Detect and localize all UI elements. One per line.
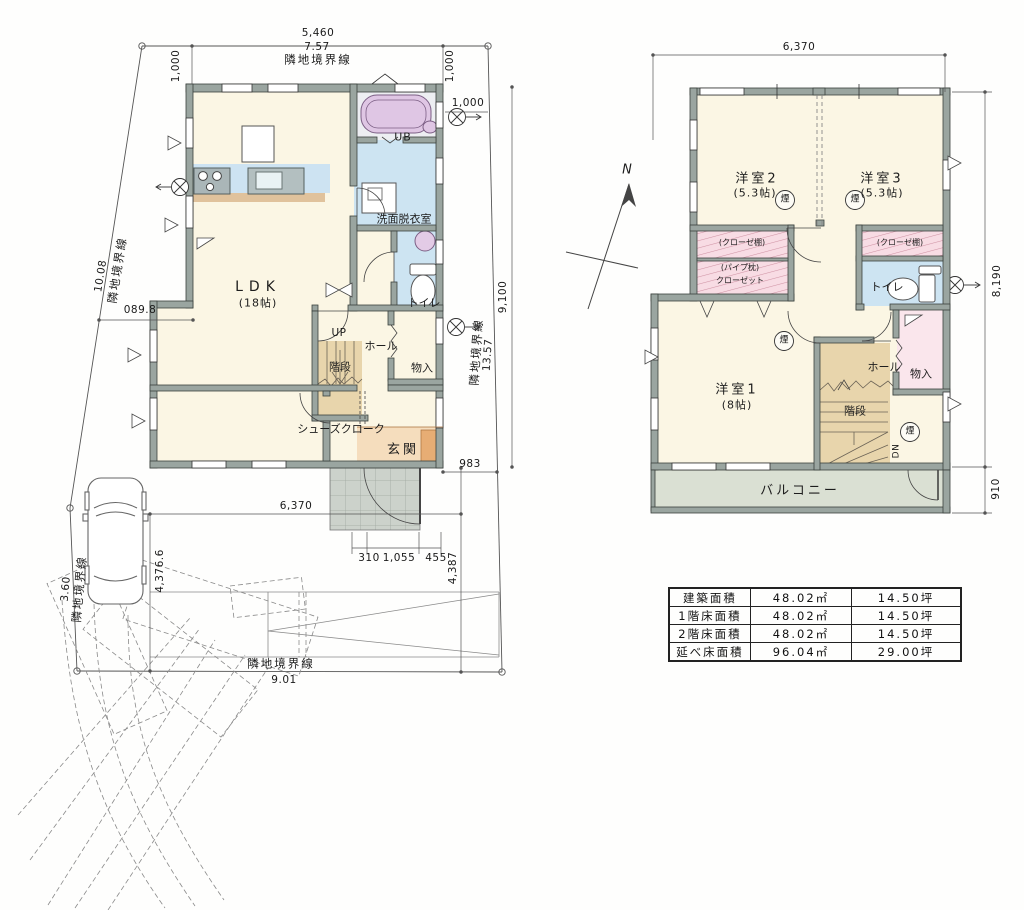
dim-boundary-bottom-len: 9.01 <box>271 675 296 686</box>
dim-f2-balcony: 910 <box>991 478 1002 500</box>
area-sqm: 48.02㎡ <box>750 607 851 625</box>
hand-basin-icon <box>415 231 435 251</box>
smoke-detector-label: 煙 <box>780 196 789 205</box>
room-label-hall1: ホール <box>365 341 398 352</box>
dim-f2-top-width: 6,370 <box>783 42 816 53</box>
dim-step-left: 089.8 <box>124 305 157 316</box>
fan-icon <box>156 179 189 196</box>
room-size-yoshitsu3: (5.3帖) <box>860 188 903 199</box>
smoke-detector-label: 煙 <box>905 428 914 437</box>
room-label-balcony: バルコニー <box>760 485 840 498</box>
area-row-label: 延べ床面積 <box>669 643 750 662</box>
room-size-yoshitsu2: (5.3帖) <box>733 188 776 199</box>
dim-gap-right: 983 <box>459 459 481 470</box>
area-sqm: 96.04㎡ <box>750 643 851 662</box>
room-label-hall2: ホール <box>868 362 901 373</box>
north-arrow-icon <box>566 183 638 309</box>
area-tsubo: 14.50坪 <box>852 625 961 643</box>
table-row: 建築面積 48.02㎡ 14.50坪 <box>669 588 961 607</box>
dim-top-width-m: 7.57 <box>304 42 329 53</box>
room-label-shoe-closet: シューズクローク <box>297 424 384 435</box>
dim-offset-right2: 1,000 <box>452 98 485 109</box>
area-row-label: 1階床面積 <box>669 607 750 625</box>
closet-label: クローゼット <box>716 277 764 285</box>
stairs-dn-label: DN <box>893 444 902 459</box>
dim-height-right: 9,100 <box>498 281 509 314</box>
room-label-stairs2: 階段 <box>844 406 866 417</box>
plan-drawing <box>0 0 1024 910</box>
bathtub-icon <box>361 95 431 133</box>
dim-south: 4,387 <box>448 552 459 585</box>
toilet2-tank-icon <box>919 275 935 302</box>
room-label-stairs1: 階段 <box>329 362 351 373</box>
boundary-label-bottom: 隣地境界線 <box>247 658 315 670</box>
room-label-ub: UB <box>394 132 412 143</box>
room-label-yoshitsu1: 洋室1 <box>715 384 758 397</box>
area-sqm: 48.02㎡ <box>750 588 851 607</box>
closet-shelf-label: (クローゼ棚) <box>877 239 923 247</box>
area-tsubo: 14.50坪 <box>852 607 961 625</box>
floor2-room-fills <box>655 92 946 511</box>
dim-porch-a: 310 <box>358 553 380 564</box>
room-label-storage1: 物入 <box>411 363 433 374</box>
room-label-toilet1: トイレ <box>408 298 441 309</box>
dim-porch-b: 1,055 <box>383 553 416 564</box>
room-size-ldk: (18帖) <box>239 298 278 309</box>
toilet1-tank-icon <box>410 264 436 275</box>
room-label-yoshitsu2: 洋室2 <box>735 173 778 186</box>
bath-sink-icon <box>423 121 437 133</box>
room-label-toilet2: トイレ <box>871 282 904 293</box>
closet-shelf-label: (クローゼ棚) <box>719 239 765 247</box>
room-label-entrance: 玄関 <box>387 444 419 457</box>
floor-plan-sheet: LDK (18帖) UB 洗面脱衣室 トイレ UP ホール 階段 物入 シューズ… <box>0 0 1024 910</box>
dim-offset-right: 1,000 <box>445 50 456 83</box>
boundary-label-top: 隣地境界線 <box>284 54 352 66</box>
dim-offset-left: 1,000 <box>171 50 182 83</box>
fan-icon <box>947 277 981 294</box>
dim-bottom-width: 6,370 <box>280 501 313 512</box>
table-row: 延べ床面積 96.04㎡ 29.00坪 <box>669 643 961 662</box>
dim-f2-height: 8,190 <box>992 265 1003 298</box>
room-label-washroom: 洗面脱衣室 <box>377 214 432 225</box>
area-tsubo: 29.00坪 <box>852 643 961 662</box>
dim-parking: 4,376.6 <box>155 549 166 593</box>
area-row-label: 2階床面積 <box>669 625 750 643</box>
room-label-yoshitsu3: 洋室3 <box>860 173 903 186</box>
area-row-label: 建築面積 <box>669 588 750 607</box>
stairs-up-label: UP <box>331 328 346 339</box>
dim-top-width: 5,460 <box>302 28 335 39</box>
area-tsubo: 14.50坪 <box>852 588 961 607</box>
smoke-detector-label: 煙 <box>779 337 788 346</box>
car-turning-path <box>18 560 499 910</box>
room-label-ldk: LDK <box>235 280 281 294</box>
closet-pipe-label: (パイプ枕) <box>721 264 759 272</box>
north-label: N <box>622 164 632 177</box>
smoke-detector-label: 煙 <box>850 196 859 205</box>
room-label-storage2: 物入 <box>910 369 932 380</box>
table-row: 1階床面積 48.02㎡ 14.50坪 <box>669 607 961 625</box>
area-sqm: 48.02㎡ <box>750 625 851 643</box>
table-row: 2階床面積 48.02㎡ 14.50坪 <box>669 625 961 643</box>
car-icon <box>83 478 148 604</box>
area-summary-table: 建築面積 48.02㎡ 14.50坪 1階床面積 48.02㎡ 14.50坪 2… <box>668 587 962 662</box>
fan-icon <box>449 109 482 126</box>
dim-porch-c: 455 <box>425 553 447 564</box>
room-size-yoshitsu1: (8帖) <box>722 400 753 411</box>
dining-table-icon <box>242 126 274 162</box>
